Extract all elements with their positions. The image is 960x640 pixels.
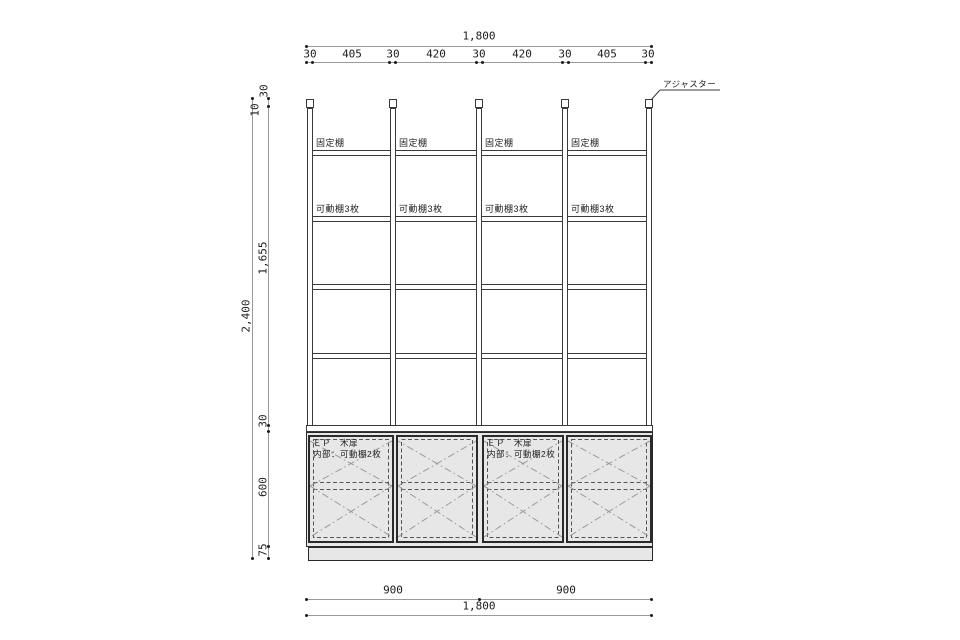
movable-shelf — [568, 353, 646, 359]
dim-top-seg: 30 — [303, 48, 316, 61]
dim-dot — [267, 105, 270, 108]
dim-top-seg: 405 — [597, 48, 617, 61]
dim-dot — [388, 61, 391, 64]
fixed-shelf — [482, 150, 562, 156]
movable-shelf — [313, 284, 390, 290]
dim-dot — [251, 557, 254, 560]
movable-shelf-label: 可動棚3枚 — [485, 202, 529, 215]
movable-shelf-label: 可動棚3枚 — [399, 202, 443, 215]
dim-left-seg: 30 — [258, 84, 271, 97]
adjuster-leader-line — [640, 80, 730, 110]
movable-shelf — [482, 216, 562, 222]
fixed-shelf — [568, 150, 646, 156]
door-panel: ＥＰ 木扉 内部：可動棚2枚 — [308, 435, 394, 543]
dim-dot — [475, 61, 478, 64]
dim-dot — [267, 430, 270, 433]
dim-dot — [650, 614, 653, 617]
post — [646, 108, 652, 427]
dim-dot — [644, 61, 647, 64]
movable-shelf — [396, 353, 476, 359]
dim-bottom-half: 900 — [556, 584, 576, 597]
dim-dot — [305, 61, 308, 64]
dim-left-seg: 30 — [257, 414, 270, 427]
door-panel: ＥＰ 木扉 内部：可動棚2枚 — [482, 435, 564, 543]
dim-left-seg: 1,655 — [257, 241, 270, 274]
dim-top-seg: 30 — [386, 48, 399, 61]
dim-top-overall: 1,800 — [462, 30, 495, 43]
movable-shelf — [313, 216, 390, 222]
dim-left-seg: 600 — [257, 477, 270, 497]
dim-left-seg: 10 — [249, 103, 262, 116]
dim-top-seg: 30 — [641, 48, 654, 61]
adjuster-square — [645, 99, 653, 108]
door-swing-marks — [568, 437, 650, 541]
dim-top-seg: 30 — [558, 48, 571, 61]
adjuster-square — [475, 99, 483, 108]
dim-top-seg: 420 — [426, 48, 446, 61]
door-interior-label: 内部：可動棚2枚 — [487, 449, 555, 460]
dim-dot — [567, 61, 570, 64]
movable-shelf — [396, 216, 476, 222]
dim-dot — [561, 61, 564, 64]
movable-shelf — [396, 284, 476, 290]
adjuster-square — [306, 99, 314, 108]
movable-shelf-label: 可動棚3枚 — [571, 202, 615, 215]
dim-line — [306, 615, 652, 616]
fixed-shelf-label: 固定棚 — [399, 136, 428, 149]
movable-shelf — [568, 216, 646, 222]
fixed-shelf-label: 固定棚 — [316, 136, 345, 149]
fixed-shelf — [396, 150, 476, 156]
plinth-base — [308, 547, 653, 561]
dim-dot — [481, 61, 484, 64]
adjuster-square — [389, 99, 397, 108]
door-interior-label: 内部：可動棚2枚 — [313, 449, 381, 460]
dim-dot — [267, 557, 270, 560]
dim-dot — [251, 97, 254, 100]
dim-dot — [311, 61, 314, 64]
dim-top-seg: 405 — [342, 48, 362, 61]
dim-dot — [305, 614, 308, 617]
movable-shelf — [568, 284, 646, 290]
dim-left-seg: 75 — [257, 543, 270, 556]
dim-bottom-half: 900 — [383, 584, 403, 597]
counter-top — [306, 425, 653, 432]
dim-left-overall: 2,400 — [240, 299, 253, 332]
dim-top-seg: 30 — [472, 48, 485, 61]
dim-line — [306, 62, 652, 63]
movable-shelf — [482, 284, 562, 290]
movable-shelf-label: 可動棚3枚 — [316, 202, 360, 215]
adjuster-square — [561, 99, 569, 108]
door-finish-label: ＥＰ 木扉 — [487, 438, 555, 449]
door-panel — [396, 435, 478, 543]
dim-top-seg: 420 — [512, 48, 532, 61]
dim-dot — [394, 61, 397, 64]
dim-dot — [305, 598, 308, 601]
dim-dot — [650, 61, 653, 64]
dim-bottom-overall: 1,800 — [462, 600, 495, 613]
door-panel — [566, 435, 652, 543]
door-swing-marks — [398, 437, 476, 541]
elevation-drawing: 1,800 30 405 30 420 30 420 30 405 30 アジャ… — [0, 0, 960, 640]
fixed-shelf-label: 固定棚 — [485, 136, 514, 149]
movable-shelf — [313, 353, 390, 359]
fixed-shelf — [313, 150, 390, 156]
movable-shelf — [482, 353, 562, 359]
dim-dot — [650, 598, 653, 601]
fixed-shelf-label: 固定棚 — [571, 136, 600, 149]
door-finish-label: ＥＰ 木扉 — [313, 438, 381, 449]
